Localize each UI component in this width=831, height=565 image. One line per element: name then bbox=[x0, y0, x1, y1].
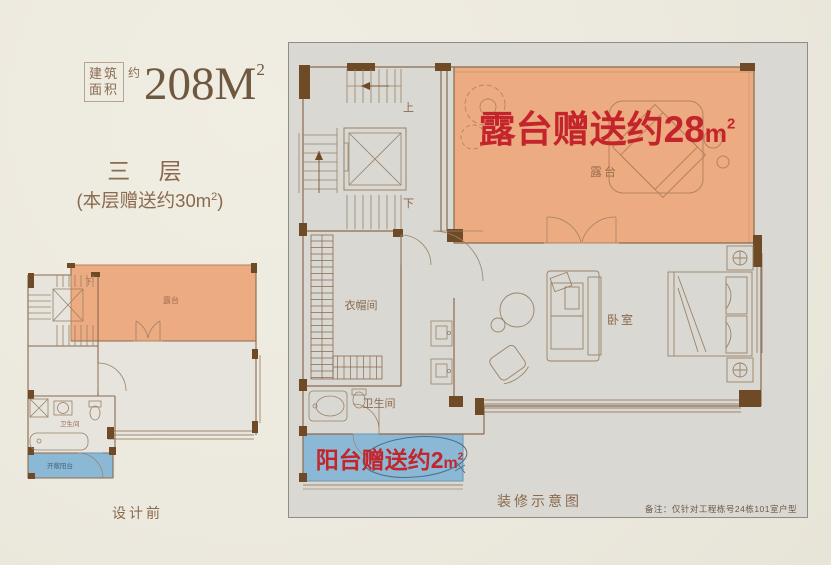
terrace-bonus-sup: 2 bbox=[727, 116, 735, 133]
stairwell bbox=[303, 69, 406, 229]
balcony-bonus-text: 阳台赠送约2 bbox=[316, 447, 444, 473]
floor-bonus-note: (本层赠送约30m2) bbox=[30, 187, 270, 213]
small-balcony-label: 开敞阳台 bbox=[47, 460, 73, 470]
area-label-row2: 面积 bbox=[89, 82, 119, 98]
terrace-bonus-banner: 露台赠送约28m2 bbox=[467, 99, 747, 153]
bathroom-label: 卫生间 bbox=[353, 395, 405, 411]
area-approx-label: 约 bbox=[128, 64, 140, 81]
before-caption: 设计前 bbox=[75, 503, 200, 523]
small-floors bbox=[28, 265, 256, 478]
small-down-label: 下 bbox=[85, 277, 92, 287]
stairs-down-label: 下 bbox=[403, 195, 414, 211]
floor-bonus-close: ) bbox=[217, 190, 223, 211]
balcony-bonus-unit: m bbox=[444, 455, 458, 472]
before-plan-drawing bbox=[23, 263, 293, 513]
balcony-bonus-banner: 阳台赠送约2m2 bbox=[307, 441, 472, 475]
bedroom-label: 卧室 bbox=[593, 311, 649, 328]
area-label-row1: 建筑 bbox=[89, 66, 119, 82]
before-design-plan: 露台 卫生间 开敞阳台 下 bbox=[23, 263, 293, 513]
stairs-up-label: 上 bbox=[403, 99, 414, 115]
page: { "header": { "area_row1": "建筑", "area_r… bbox=[0, 0, 831, 565]
plan-note: 备注：仅针对工程栋号24栋101室户型 bbox=[645, 503, 797, 515]
corridor-fixtures bbox=[431, 321, 452, 384]
terrace-bonus-text: 露台赠送约28 bbox=[479, 109, 705, 150]
small-bathroom-label: 卫生间 bbox=[60, 418, 80, 428]
elevator-shaft bbox=[344, 128, 406, 190]
lounge-chair bbox=[488, 344, 531, 387]
floor-title: 三 层 bbox=[52, 152, 248, 186]
main-plan-panel: 露台赠送约28m2 露台 上 下 衣帽间 卫生间 卧室 阳台赠送约2m2 装修示… bbox=[288, 42, 808, 518]
terrace-area bbox=[454, 67, 754, 243]
bed bbox=[668, 272, 752, 356]
terrace-label: 露台 bbox=[576, 163, 632, 180]
area-label-box: 建筑 面积 bbox=[84, 62, 124, 102]
balcony-bonus-sup: 2 bbox=[458, 451, 464, 462]
building-area-badge: 建筑 面积 约 208M 2 bbox=[84, 62, 265, 106]
cloakroom-label: 衣帽间 bbox=[335, 297, 387, 313]
area-value-sup: 2 bbox=[256, 60, 265, 80]
small-terrace-label: 露台 bbox=[163, 295, 179, 306]
coffee-table bbox=[491, 293, 534, 332]
area-value: 208M bbox=[144, 62, 256, 106]
floor-bonus-text: (本层赠送约30m bbox=[77, 190, 212, 211]
terrace-bonus-unit: m bbox=[705, 120, 727, 148]
plan-caption: 装修示意图 bbox=[467, 491, 612, 511]
